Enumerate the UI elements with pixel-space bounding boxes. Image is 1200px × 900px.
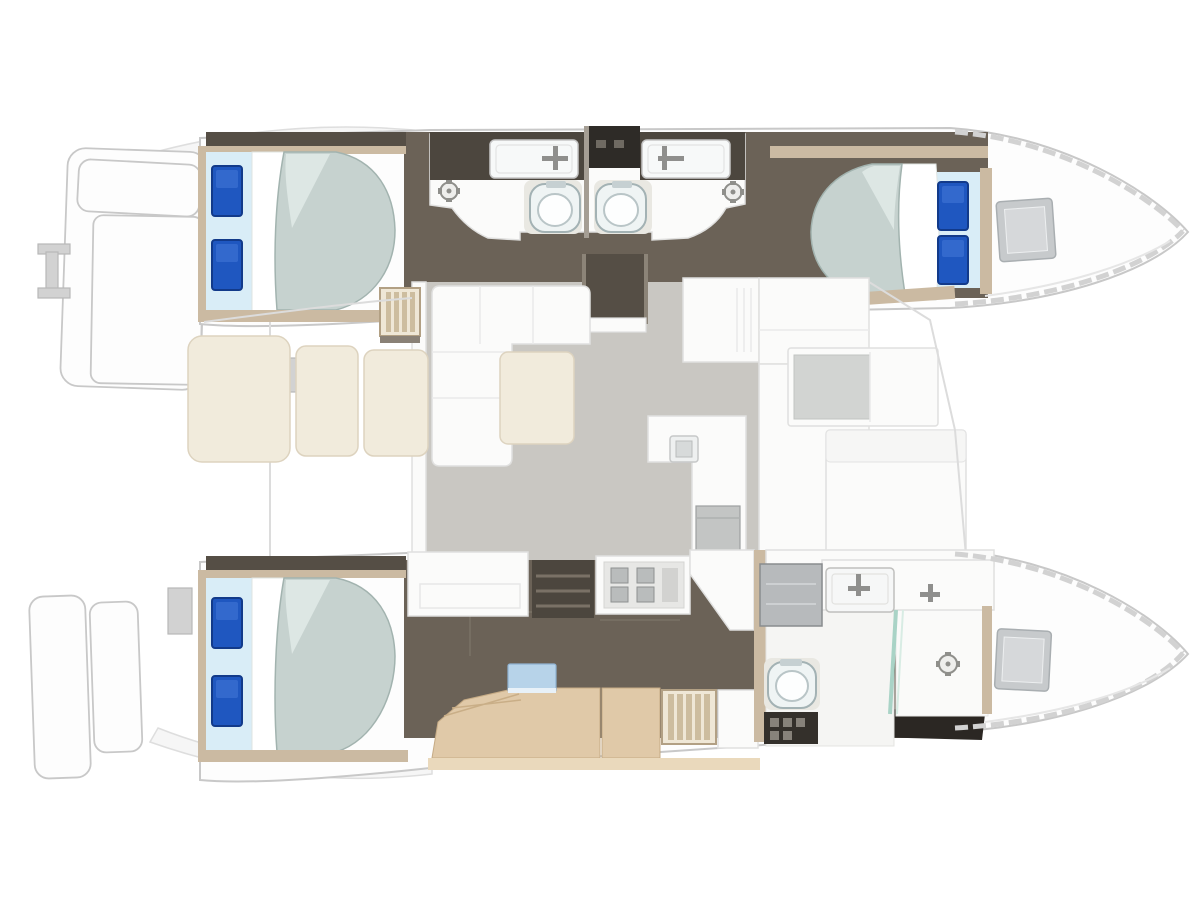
catamaran-floor-plan <box>0 0 1200 900</box>
cabin-wall <box>206 556 406 572</box>
cabinet-drawers <box>683 278 759 362</box>
bed-frame-top <box>770 146 988 158</box>
heads-appliance <box>586 126 640 168</box>
cockpit-cushion <box>296 346 358 456</box>
toilet-pump-unit <box>764 712 818 744</box>
head-forward-wall <box>982 606 992 714</box>
stove-burner-icon <box>611 568 628 583</box>
cabin-wall <box>206 132 406 148</box>
bed-pillow <box>212 240 242 290</box>
washer-unit <box>760 564 822 626</box>
seat-backrest <box>826 430 966 462</box>
deck-hatch-icon <box>994 629 1051 692</box>
swim-platform-bottom <box>29 588 192 779</box>
cockpit-cushion <box>188 336 290 462</box>
bed-frame-bottom <box>198 750 408 762</box>
stove <box>596 556 690 614</box>
table-edge <box>508 688 556 693</box>
sink-right <box>642 140 730 178</box>
appliance-knob <box>614 140 624 148</box>
dinette-bench-segment <box>602 688 660 758</box>
bed-pillow <box>212 166 242 216</box>
platform-step <box>29 595 91 779</box>
bed-pillow <box>938 182 968 230</box>
galley-sink-icon <box>670 436 698 462</box>
stove-burner-icon <box>611 587 628 602</box>
stove-burner-icon <box>637 568 654 583</box>
platform-step <box>89 601 142 753</box>
swim-platform-top <box>38 148 208 391</box>
stove-burner-icon <box>637 587 654 602</box>
sideboard-inset <box>794 355 870 419</box>
bed-frame-bottom <box>198 310 406 322</box>
bed-pillow <box>938 236 968 284</box>
platform-step <box>77 159 202 217</box>
cockpit-cushion <box>364 350 428 456</box>
louver-locker <box>662 690 716 744</box>
bed-frame-right <box>980 168 992 294</box>
side-table <box>508 664 556 693</box>
toilet-left <box>524 180 582 234</box>
sofa-chaise-cushion <box>500 352 574 444</box>
open-shelves <box>532 560 594 618</box>
dinette-end-cabinet <box>718 690 758 748</box>
head-sink <box>826 568 894 612</box>
stove-side-tray <box>662 568 678 602</box>
toilet-forward <box>764 658 820 710</box>
deck-hatch-icon <box>996 198 1056 262</box>
duvet-fold <box>899 164 939 300</box>
bed-pillow <box>212 598 242 648</box>
appliance-knob <box>596 140 606 148</box>
companionway-steps-port <box>380 288 420 343</box>
stern-cleat <box>168 588 192 634</box>
bed-frame-top <box>206 570 406 578</box>
platform-step <box>91 215 204 385</box>
forward-seat <box>826 430 966 556</box>
saloon-sofa <box>432 286 590 466</box>
toilet-right <box>594 180 652 234</box>
boat-plan-svg <box>0 0 1200 900</box>
bed-pillow <box>212 676 242 726</box>
dinette-plinth <box>428 758 760 770</box>
heads-divider-wall <box>584 126 589 238</box>
heads-top <box>430 126 745 240</box>
